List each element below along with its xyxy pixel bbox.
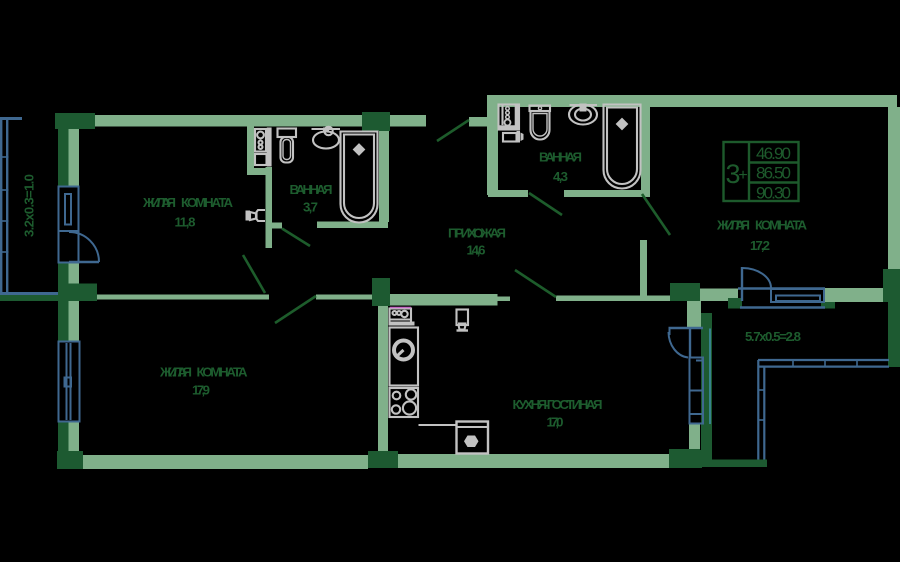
svg-text:ПРИХОЖАЯ: ПРИХОЖАЯ — [448, 226, 506, 241]
svg-text:ВАННАЯ: ВАННАЯ — [539, 150, 582, 165]
svg-text:3.2х0.3=1.0: 3.2х0.3=1.0 — [22, 174, 37, 237]
svg-text:4,3: 4,3 — [553, 169, 568, 184]
svg-text:86.50: 86.50 — [756, 164, 791, 183]
svg-text:17,9: 17,9 — [192, 383, 210, 398]
svg-text:КУХНЯ-ГОСТИНАЯ: КУХНЯ-ГОСТИНАЯ — [513, 397, 603, 412]
svg-text:+: + — [738, 167, 747, 184]
svg-text:КОМНАТА: КОМНАТА — [755, 218, 807, 233]
svg-text:46.90: 46.90 — [756, 144, 791, 163]
svg-text:КОМНАТА: КОМНАТА — [197, 365, 248, 380]
svg-text:ЖИЛАЯ: ЖИЛАЯ — [142, 195, 176, 210]
svg-text:ВАННАЯ: ВАННАЯ — [290, 182, 333, 197]
svg-text:КОМНАТА: КОМНАТА — [181, 195, 233, 210]
svg-text:11,8: 11,8 — [175, 215, 196, 230]
svg-text:90.30: 90.30 — [756, 184, 791, 203]
svg-text:3,7: 3,7 — [303, 200, 318, 215]
svg-text:17,2: 17,2 — [750, 238, 770, 253]
svg-text:ЖИЛАЯ: ЖИЛАЯ — [716, 218, 750, 233]
svg-text:14,6: 14,6 — [467, 243, 486, 258]
svg-text:5.7х0.5=2.8: 5.7х0.5=2.8 — [745, 329, 801, 344]
svg-text:17,0: 17,0 — [547, 415, 564, 430]
svg-text:ЖИЛАЯ: ЖИЛАЯ — [159, 365, 192, 380]
